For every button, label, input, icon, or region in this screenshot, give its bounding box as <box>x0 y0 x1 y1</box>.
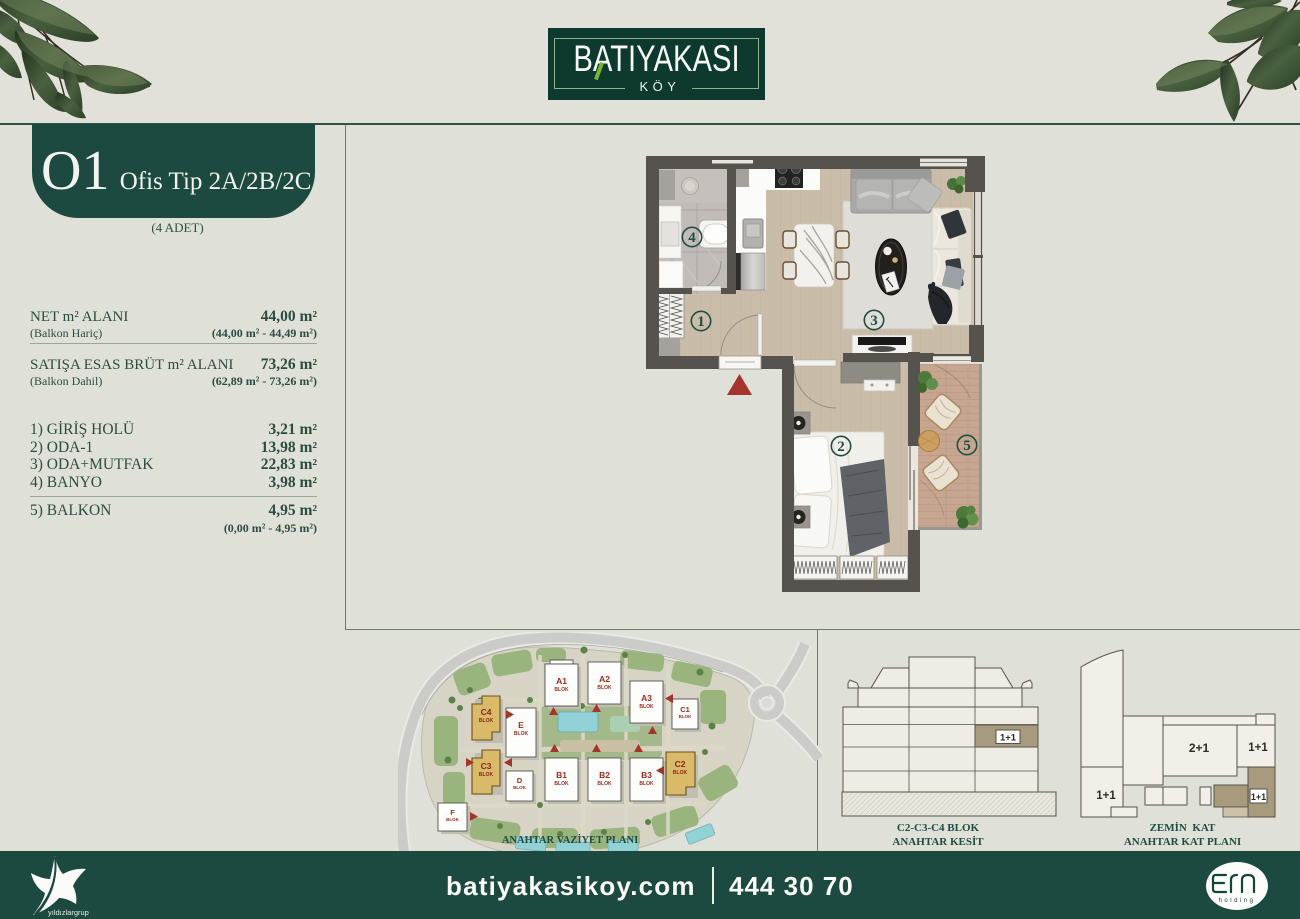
svg-text:5: 5 <box>963 438 971 454</box>
svg-text:D: D <box>517 776 523 785</box>
svg-text:B1: B1 <box>556 770 567 780</box>
svg-text:BLOK: BLOK <box>554 687 569 693</box>
svg-text:yıldızlargrup: yıldızlargrup <box>48 908 89 917</box>
svg-text:holding: holding <box>1219 898 1256 904</box>
svg-text:2+1: 2+1 <box>1189 741 1210 755</box>
svg-text:C1: C1 <box>680 705 690 714</box>
svg-text:BLOK: BLOK <box>679 714 692 719</box>
svg-text:BLOK: BLOK <box>554 781 569 787</box>
svg-text:BLOK: BLOK <box>513 785 526 790</box>
svg-text:A1: A1 <box>556 676 567 686</box>
svg-text:BLOK: BLOK <box>479 772 494 778</box>
svg-text:BLOK: BLOK <box>673 770 688 776</box>
svg-text:1+1: 1+1 <box>1248 742 1268 754</box>
svg-text:BLOK: BLOK <box>639 704 654 710</box>
svg-text:BLOK: BLOK <box>446 817 459 822</box>
svg-text:BLOK: BLOK <box>597 781 612 787</box>
svg-text:BLOK: BLOK <box>479 718 494 724</box>
svg-text:B2: B2 <box>599 770 610 780</box>
svg-text:C2: C2 <box>675 759 686 769</box>
svg-text:A2: A2 <box>599 674 610 684</box>
svg-text:3: 3 <box>870 313 878 329</box>
svg-text:E: E <box>518 720 524 730</box>
svg-text:A3: A3 <box>641 693 652 703</box>
svg-text:4: 4 <box>688 230 696 246</box>
svg-text:BLOK: BLOK <box>597 685 612 691</box>
svg-text:1+1: 1+1 <box>1000 733 1017 744</box>
svg-text:F: F <box>450 808 455 817</box>
svg-text:2: 2 <box>837 439 845 455</box>
svg-text:1+1: 1+1 <box>1096 790 1116 802</box>
svg-text:C3: C3 <box>481 761 492 771</box>
svg-text:BLOK: BLOK <box>639 781 654 787</box>
svg-text:BLOK: BLOK <box>514 731 529 737</box>
svg-text:C4: C4 <box>481 707 492 717</box>
svg-text:1: 1 <box>697 314 705 330</box>
svg-text:B3: B3 <box>641 770 652 780</box>
svg-text:1+1: 1+1 <box>1251 792 1266 802</box>
